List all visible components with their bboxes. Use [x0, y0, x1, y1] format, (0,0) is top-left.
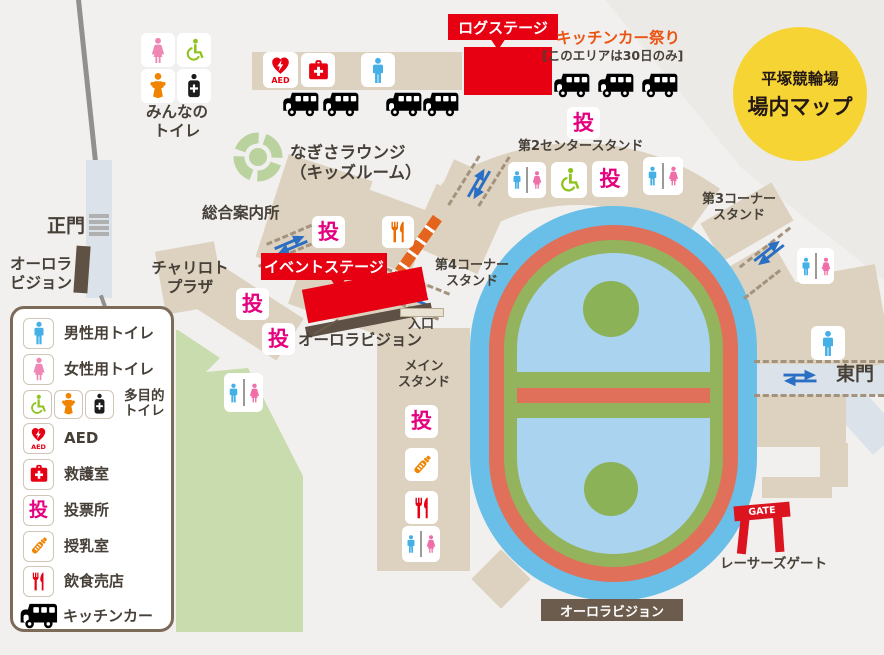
polling-place-icon: 投: [567, 107, 600, 139]
polling-place-icon: 投: [236, 288, 269, 320]
kitchen-car-icon: [280, 91, 320, 118]
legend-label: 投票所: [64, 502, 109, 519]
kitchen-car-icon: [383, 91, 423, 118]
baby-icon: [54, 390, 83, 419]
stand3-label: 第3コーナー スタンド: [692, 192, 786, 224]
info-center-label: 総合案内所: [202, 204, 280, 223]
map-title: 場内マップ: [748, 91, 853, 121]
aed-text: AED: [31, 444, 46, 451]
venue-map-canvas: ログステージ イベントステージ オーロラビジョン GATE AED 投 投 投 …: [0, 0, 884, 655]
venue-name: 平塚競輪場: [761, 67, 839, 89]
toilet-male-icon: [23, 318, 54, 349]
aed-icon: AED: [263, 52, 298, 88]
aurora-west-label: オーロラ ビジョン: [8, 255, 74, 293]
legend-label: 飲食売店: [64, 573, 124, 590]
toilet-male-female-icon: [643, 157, 683, 195]
legend-row: 女性用トイレ: [23, 353, 154, 385]
legend-row: 男性用トイレ: [23, 317, 154, 349]
log-stage-label: ログステージ: [448, 14, 558, 40]
legend-row: 投 投票所: [23, 494, 109, 526]
legend-label: 救護室: [64, 466, 109, 483]
legend-label: AED: [64, 430, 98, 447]
wheelchair-icon: [23, 390, 52, 419]
polling-place-icon: 投: [312, 216, 345, 248]
ostomate-icon: [177, 69, 211, 103]
chariloto-label: チャリロト プラザ: [150, 259, 230, 297]
divider: [243, 379, 245, 406]
nursing-room-icon: [405, 448, 438, 481]
main-stand-label: メイン スタンド: [396, 359, 452, 391]
aurora-vision-south-bar: オーロラビジョン: [541, 599, 683, 621]
divider: [662, 163, 664, 190]
divider: [526, 167, 528, 192]
wheelchair-icon: [177, 33, 211, 67]
east-gate-label: 東門: [836, 363, 874, 386]
ostomate-icon: [85, 390, 114, 419]
aed-text: AED: [271, 77, 289, 85]
food-stand-icon: [23, 566, 54, 597]
legend-row: AED AED: [23, 422, 98, 454]
toilet-male-icon: [811, 326, 845, 360]
legend-row: 飲食売店: [23, 565, 124, 597]
nursing-room-icon: [23, 531, 54, 562]
nagisa-label: なぎさラウンジ （キッズルーム）: [290, 143, 422, 183]
main-gate-label: 正門: [47, 215, 85, 238]
legend-row: キッチンカー: [17, 600, 153, 632]
polling-place-icon: 投: [262, 323, 295, 355]
vote-text: 投: [600, 169, 621, 190]
racers-gate-label: レーサーズゲート: [720, 556, 827, 572]
food-stand-icon: [405, 491, 438, 524]
vote-text: 投: [411, 411, 432, 432]
minna-toilet-label: みんなの トイレ: [131, 103, 223, 141]
toilet-male-female-icon: [224, 373, 263, 412]
wheelchair-icon: [551, 162, 587, 198]
legend-row: 救護室: [23, 458, 109, 490]
kitchen-car-icon: [17, 602, 59, 630]
event-stage-pointer: [330, 278, 346, 290]
infield-center-red: [517, 388, 710, 403]
divider: [815, 253, 817, 278]
infield: [517, 253, 710, 554]
baby-icon: [141, 69, 175, 103]
vote-text: 投: [268, 329, 289, 350]
two-way-arrow-icon: [781, 369, 819, 387]
gate-text: GATE: [748, 505, 776, 518]
stand2-label: 第2センタースタンド: [518, 139, 643, 155]
toilet-male-female-icon: [508, 162, 546, 198]
vote-text: 投: [29, 501, 48, 520]
kitchen-car-icon: [639, 72, 679, 99]
vote-text: 投: [318, 222, 339, 243]
infield-circle-south: [584, 462, 638, 516]
legend-row: 多目的 トイレ: [23, 388, 165, 420]
map-title-badge: 平塚競輪場 場内マップ: [733, 27, 867, 161]
food-stand-icon: [382, 216, 414, 248]
divider: [420, 531, 422, 556]
legend-label: 授乳室: [64, 538, 109, 555]
legend-panel: 男性用トイレ 女性用トイレ 多目的 トイレ AED AED 救護室 投 投票所 …: [10, 306, 174, 632]
aed-icon: AED: [23, 423, 54, 454]
kitchen-fest-label: キッチンカー祭り: [556, 29, 680, 48]
toilet-male-female-icon: [797, 248, 834, 284]
polling-place-icon: 投: [592, 161, 628, 197]
first-aid-room-icon: [301, 53, 335, 87]
entrance-bar: [400, 308, 444, 317]
event-stage-label-text: イベントステージ: [264, 256, 384, 277]
nagisa-lounge-mark: [231, 130, 285, 184]
toilet-female-icon: [141, 33, 175, 67]
infield-circle-north: [583, 281, 639, 337]
log-stage-label-text: ログステージ: [458, 17, 548, 38]
log-stage-pointer: [490, 38, 506, 50]
legend-label: 女性用トイレ: [64, 361, 154, 378]
log-stage: [464, 47, 552, 95]
path-dash: [754, 394, 884, 397]
legend-label: キッチンカー: [63, 608, 153, 625]
kitchen-car-icon: [320, 91, 360, 118]
toilet-male-icon: [361, 53, 395, 87]
event-stage-label: イベントステージ: [261, 253, 387, 280]
first-aid-room-icon: [23, 459, 54, 490]
stand4-label: 第4コーナー スタンド: [428, 258, 516, 290]
kitchen-note-label: [このエリアは30日のみ]: [542, 48, 683, 63]
legend-label: 男性用トイレ: [64, 325, 154, 342]
kitchen-car-icon: [551, 72, 591, 99]
polling-place-icon: 投: [23, 495, 54, 526]
aurora-stage-label: オーロラビジョン: [298, 331, 422, 350]
vote-text: 投: [242, 294, 263, 315]
polling-place-icon: 投: [405, 405, 438, 438]
kitchen-car-icon: [595, 72, 635, 99]
toilet-female-icon: [23, 354, 54, 385]
kitchen-car-icon: [420, 91, 460, 118]
vote-text: 投: [573, 113, 594, 134]
toilet-male-female-icon: [402, 526, 440, 562]
aurora-vision-south-text: オーロラビジョン: [560, 601, 664, 620]
legend-label: 多目的 トイレ: [124, 389, 165, 419]
legend-row: 授乳室: [23, 530, 109, 562]
